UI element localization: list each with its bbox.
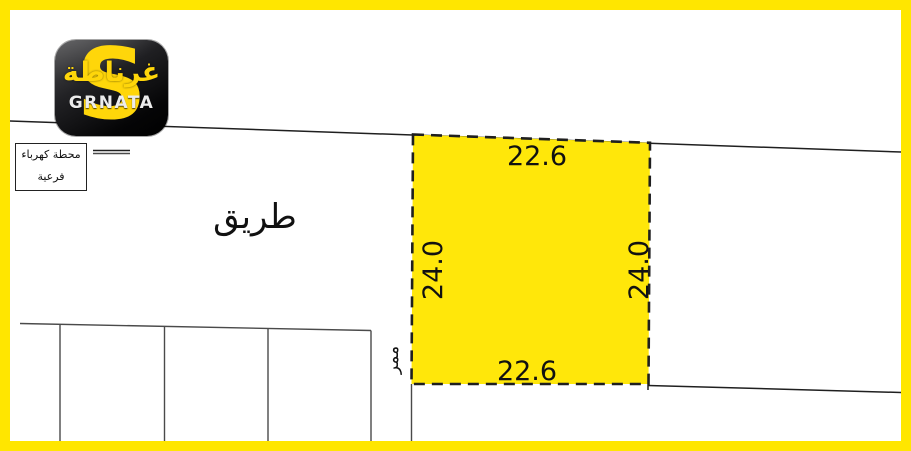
road-label: طريق xyxy=(213,197,297,237)
plot-dimension-top: 22.6 xyxy=(507,141,567,172)
plot-dimension-bottom: 22.6 xyxy=(497,356,557,387)
logo-latin-text: GRNATA xyxy=(55,93,168,113)
plot-map-canvas: 22.6 22.6 24.0 24.0 طريق ممر محطة كهرباء… xyxy=(0,0,911,451)
road-boundary-line-bottom-right xyxy=(648,386,901,393)
plot-dimension-left: 24.0 xyxy=(418,240,449,300)
passage-label: ممر xyxy=(383,346,403,375)
neighbor-parcels-top-line xyxy=(20,324,371,331)
logo-arabic-text: غرناطة xyxy=(55,57,168,88)
substation-label-line2: فرعية xyxy=(16,166,86,188)
plot-dimension-right: 24.0 xyxy=(624,240,655,300)
substation-label-line1: محطة كهرباء xyxy=(16,144,86,166)
grnata-logo: S غرناطة GRNATA xyxy=(55,40,168,136)
substation-label-box: محطة كهرباء فرعية xyxy=(15,143,87,191)
